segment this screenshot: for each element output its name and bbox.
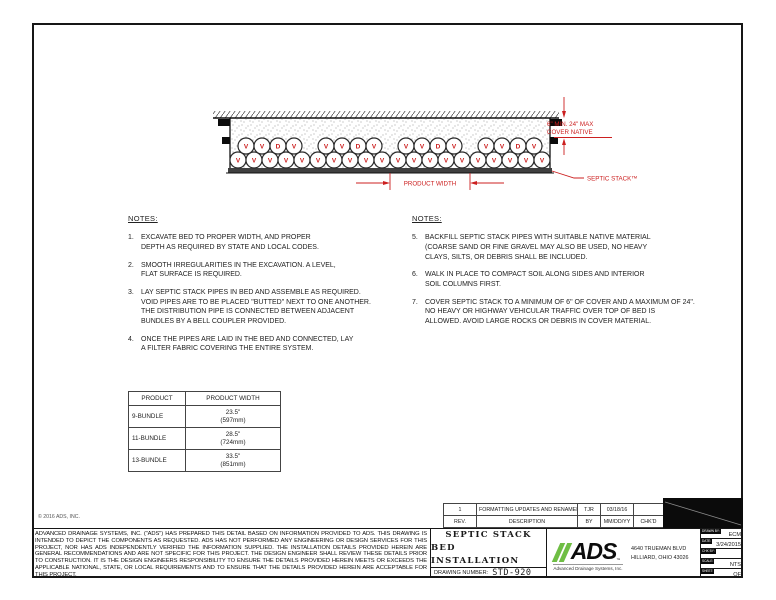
notes-right-heading: NOTES:: [412, 214, 744, 224]
address-cell: 4640 TRUEMAN BLVD HILLIARD, OHIO 43026: [629, 529, 701, 578]
svg-text:V: V: [340, 143, 345, 150]
info-row: SHEET:OF: [701, 569, 743, 578]
flag-diagonal-line: [663, 498, 743, 528]
notes-left-heading: NOTES:: [128, 214, 420, 224]
ads-logo: ADS ™: [556, 540, 621, 562]
revision-header-cell: REV.: [444, 516, 477, 528]
svg-text:V: V: [244, 143, 249, 150]
svg-text:D: D: [436, 143, 441, 150]
note-text: SMOOTH IRREGULARITIES IN THE EXCAVATION.…: [141, 261, 336, 280]
info-row: SCALE:NTS: [701, 559, 743, 569]
svg-text:V: V: [364, 157, 369, 164]
svg-text:V: V: [460, 157, 465, 164]
svg-text:V: V: [420, 143, 425, 150]
note-item: 3.LAY SEPTIC STACK PIPES IN BED AND ASSE…: [128, 288, 420, 327]
note-number: 3.: [128, 288, 141, 327]
ads-logo-subtitle: Advanced Drainage Systems, Inc.: [553, 564, 622, 571]
drawing-number-row: DRAWING NUMBER: STD-920: [431, 567, 546, 578]
ads-logo-text: ADS: [571, 542, 617, 562]
info-value: OF: [733, 572, 741, 578]
svg-text:V: V: [324, 143, 329, 150]
sheet-title: SEPTIC STACK BED INSTALLATION: [431, 529, 546, 567]
revision-header-row: REV.DESCRIPTIONBYMM/DD/YYCHK'D: [444, 516, 664, 528]
svg-text:V: V: [268, 157, 273, 164]
product-name: 13-BUNDLE: [129, 450, 186, 472]
revision-entry-cell: FORMATTING UPDATES AND RENAMED: [477, 504, 578, 516]
svg-text:V: V: [476, 157, 481, 164]
revision-entry-cell: 1: [444, 504, 477, 516]
note-number: 7.: [412, 298, 425, 327]
svg-text:V: V: [300, 157, 305, 164]
notes-right: NOTES: 5.BACKFILL SEPTIC STACK PIPES WIT…: [412, 214, 744, 335]
note-number: 1.: [128, 233, 141, 252]
drawing-number-value: STD-920: [492, 568, 531, 578]
info-row: DRAWN BY:ECM: [701, 529, 743, 539]
svg-text:V: V: [380, 157, 385, 164]
note-item: 5.BACKFILL SEPTIC STACK PIPES WITH SUITA…: [412, 233, 744, 262]
drawing-sheet: VVVVVVVDVVVVVVVVDVVVVVVVVDVVVVVVVVDVPROD…: [0, 0, 776, 600]
product-table-row: 11-BUNDLE28.5"(724mm): [129, 428, 281, 450]
svg-text:V: V: [396, 157, 401, 164]
svg-text:V: V: [332, 157, 337, 164]
product-table-header-width: PRODUCT WIDTH: [186, 392, 281, 406]
product-width-value: 33.5"(851mm): [186, 450, 281, 472]
svg-text:V: V: [500, 143, 505, 150]
product-width-table: PRODUCT PRODUCT WIDTH 9-BUNDLE23.5"(597m…: [128, 391, 281, 472]
notes-left-items: 1.EXCAVATE BED TO PROPER WIDTH, AND PROP…: [128, 233, 420, 354]
svg-text:COVER NATIVE: COVER NATIVE: [547, 129, 593, 136]
product-table-header-product: PRODUCT: [129, 392, 186, 406]
disclaimer-box: ADVANCED DRAINAGE SYSTEMS, INC. ("ADS") …: [32, 528, 431, 578]
info-label: DRAWN BY:: [701, 529, 721, 534]
note-item: 7.COVER SEPTIC STACK TO A MINIMUM OF 6" …: [412, 298, 744, 327]
product-table-row: 13-BUNDLE33.5"(851mm): [129, 450, 281, 472]
product-table-row: 9-BUNDLE23.5"(597mm): [129, 406, 281, 428]
info-value: NTS: [730, 562, 741, 568]
title-corner-flag: [663, 498, 743, 528]
sheet-title-line1: SEPTIC STACK: [445, 529, 531, 542]
info-label: SCALE:: [701, 559, 714, 564]
svg-text:V: V: [252, 157, 257, 164]
note-item: 6.WALK IN PLACE TO COMPACT SOIL ALONG SI…: [412, 270, 744, 289]
address-line2: HILLIARD, OHIO 43026: [631, 554, 700, 562]
svg-text:D: D: [356, 143, 361, 150]
svg-text:V: V: [412, 157, 417, 164]
copyright-note: © 2016 ADS, INC.: [38, 514, 80, 520]
info-column: DRAWN BY:ECMDATE:3/24/2015CHK BY:SCALE:N…: [701, 529, 743, 578]
info-row: CHK BY:: [701, 549, 743, 559]
info-label: DATE:: [701, 539, 712, 544]
info-value: ECM: [729, 532, 741, 538]
notes-left: NOTES: 1.EXCAVATE BED TO PROPER WIDTH, A…: [128, 214, 420, 362]
revision-entry-cell: TJR: [578, 504, 601, 516]
svg-text:V: V: [292, 143, 297, 150]
trademark-symbol: ™: [616, 557, 620, 562]
bed-cross-section-drawing: VVVVVVVDVVVVVVVVDVVVVVVVVDVVVVVVVVDVPROD…: [198, 93, 638, 198]
note-item: 1.EXCAVATE BED TO PROPER WIDTH, AND PROP…: [128, 233, 420, 252]
revision-header-cell: MM/DD/YY: [601, 516, 634, 528]
revision-header-cell: CHK'D: [634, 516, 664, 528]
product-width-value: 23.5"(597mm): [186, 406, 281, 428]
note-number: 4.: [128, 335, 141, 354]
note-text: WALK IN PLACE TO COMPACT SOIL ALONG SIDE…: [425, 270, 645, 289]
info-label: CHK BY:: [701, 549, 716, 554]
svg-text:SEPTIC STACK™: SEPTIC STACK™: [587, 175, 637, 182]
note-text: ONCE THE PIPES ARE LAID IN THE BED AND C…: [141, 335, 353, 354]
svg-text:V: V: [524, 157, 529, 164]
note-text: EXCAVATE BED TO PROPER WIDTH, AND PROPER…: [141, 233, 319, 252]
svg-text:V: V: [444, 157, 449, 164]
svg-text:PRODUCT WIDTH: PRODUCT WIDTH: [404, 180, 456, 187]
title-cell: SEPTIC STACK BED INSTALLATION DRAWING NU…: [431, 529, 547, 578]
note-item: 4.ONCE THE PIPES ARE LAID IN THE BED AND…: [128, 335, 420, 354]
svg-text:6" MIN. 24" MAX: 6" MIN. 24" MAX: [547, 121, 593, 128]
revision-entry-cell: [634, 504, 664, 516]
svg-text:V: V: [348, 157, 353, 164]
note-number: 2.: [128, 261, 141, 280]
svg-text:V: V: [452, 143, 457, 150]
svg-text:V: V: [484, 143, 489, 150]
svg-text:V: V: [492, 157, 497, 164]
revision-entry-row: 1FORMATTING UPDATES AND RENAMEDTJR03/18/…: [444, 504, 664, 516]
svg-text:V: V: [372, 143, 377, 150]
svg-text:V: V: [260, 143, 265, 150]
svg-text:V: V: [532, 143, 537, 150]
svg-text:V: V: [404, 143, 409, 150]
product-width-value: 28.5"(724mm): [186, 428, 281, 450]
svg-text:V: V: [236, 157, 241, 164]
revision-header-cell: BY: [578, 516, 601, 528]
revision-header-cell: DESCRIPTION: [477, 516, 578, 528]
info-label: SHEET:: [701, 569, 714, 574]
svg-text:V: V: [316, 157, 321, 164]
note-text: COVER SEPTIC STACK TO A MINIMUM OF 6" OF…: [425, 298, 695, 327]
note-number: 6.: [412, 270, 425, 289]
product-name: 9-BUNDLE: [129, 406, 186, 428]
sheet-title-line2: BED INSTALLATION: [431, 542, 546, 568]
svg-text:V: V: [540, 157, 545, 164]
note-text: BACKFILL SEPTIC STACK PIPES WITH SUITABL…: [425, 233, 651, 262]
drawing-number-label: DRAWING NUMBER:: [434, 570, 488, 576]
title-block: SEPTIC STACK BED INSTALLATION DRAWING NU…: [431, 528, 743, 578]
info-value: 3/24/2015: [716, 542, 741, 548]
revision-entry-cell: 03/18/16: [601, 504, 634, 516]
notes-right-items: 5.BACKFILL SEPTIC STACK PIPES WITH SUITA…: [412, 233, 744, 326]
svg-text:D: D: [276, 143, 281, 150]
info-row: DATE:3/24/2015: [701, 539, 743, 549]
svg-text:D: D: [516, 143, 521, 150]
revision-table: 1FORMATTING UPDATES AND RENAMEDTJR03/18/…: [443, 503, 664, 528]
svg-text:V: V: [428, 157, 433, 164]
svg-text:V: V: [508, 157, 513, 164]
logo-cell: ADS ™ Advanced Drainage Systems, Inc.: [547, 529, 629, 578]
note-number: 5.: [412, 233, 425, 262]
product-name: 11-BUNDLE: [129, 428, 186, 450]
disclaimer-text: ADVANCED DRAINAGE SYSTEMS, INC. ("ADS") …: [35, 531, 427, 578]
note-text: LAY SEPTIC STACK PIPES IN BED AND ASSEMB…: [141, 288, 371, 327]
address-line1: 4640 TRUEMAN BLVD: [631, 545, 700, 553]
svg-text:V: V: [284, 157, 289, 164]
note-item: 2.SMOOTH IRREGULARITIES IN THE EXCAVATIO…: [128, 261, 420, 280]
